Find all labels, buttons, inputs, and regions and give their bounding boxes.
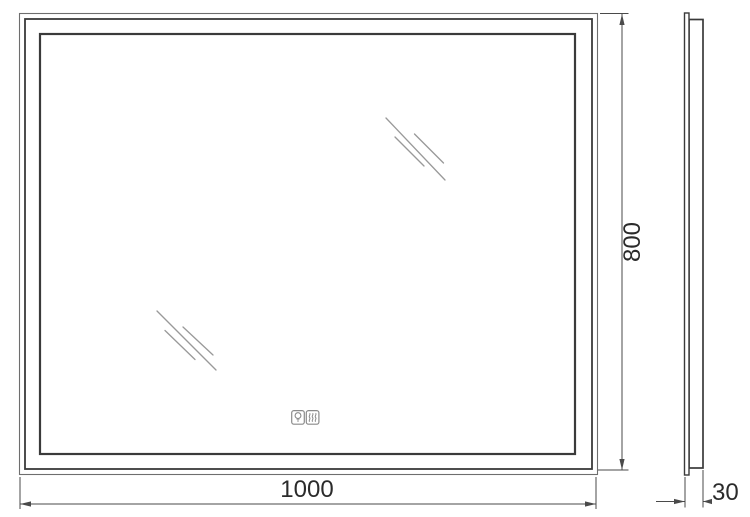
- dimension-width: 1000: [20, 476, 596, 509]
- light-button-icon: [292, 411, 305, 425]
- front-view: [20, 14, 598, 475]
- hatch-line: [415, 134, 444, 163]
- demister-button-icon: [306, 411, 319, 425]
- glass-hatch-lower-left: [157, 311, 216, 370]
- wave-glyph: [312, 413, 313, 421]
- side-view-glass: [685, 13, 690, 475]
- side-view-body: [689, 20, 703, 469]
- arrowhead-right: [703, 499, 712, 504]
- depth-dimension-label: 30: [712, 479, 739, 506]
- arrowhead-top: [619, 14, 624, 25]
- hatch-line: [157, 311, 216, 370]
- arrowhead-left: [674, 499, 685, 504]
- arrowhead-left: [20, 501, 31, 506]
- height-dimension-label: 800: [619, 222, 646, 262]
- hatch-line: [395, 137, 424, 166]
- width-dimension-label: 1000: [280, 476, 333, 503]
- hatch-line: [386, 118, 445, 180]
- bulb-glyph: [295, 413, 301, 419]
- dimension-height: 800: [598, 14, 646, 471]
- mirror-led-frame-line: [25, 19, 592, 469]
- arrowhead-right: [585, 501, 596, 506]
- wave-glyph: [309, 413, 310, 421]
- glass-hatch-upper-right: [386, 118, 445, 180]
- mirror-inner-frame: [40, 34, 575, 454]
- dimension-depth: 30: [656, 470, 739, 508]
- mirror-technical-drawing: 1000 800 30: [0, 0, 750, 517]
- side-profile-view: [685, 13, 704, 475]
- mirror-outer-edge: [20, 14, 598, 475]
- drawing-canvas: 1000 800 30: [0, 0, 750, 517]
- wave-glyph: [315, 413, 316, 421]
- arrowhead-bottom: [619, 459, 624, 470]
- touch-controls: [292, 411, 319, 425]
